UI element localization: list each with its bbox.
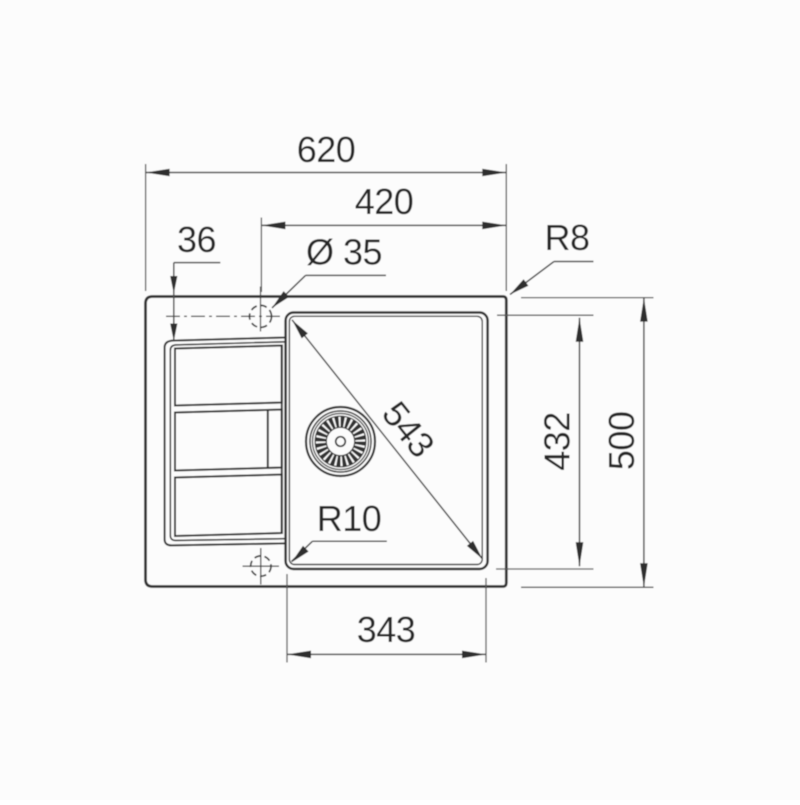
svg-text:36: 36 <box>177 219 216 260</box>
svg-text:432: 432 <box>537 412 578 471</box>
svg-text:Ø 35: Ø 35 <box>306 232 382 273</box>
svg-text:620: 620 <box>297 129 356 170</box>
svg-text:R8: R8 <box>544 217 589 258</box>
svg-text:343: 343 <box>357 609 416 650</box>
svg-text:420: 420 <box>355 181 414 222</box>
svg-text:500: 500 <box>601 412 642 471</box>
svg-text:R10: R10 <box>317 498 382 539</box>
